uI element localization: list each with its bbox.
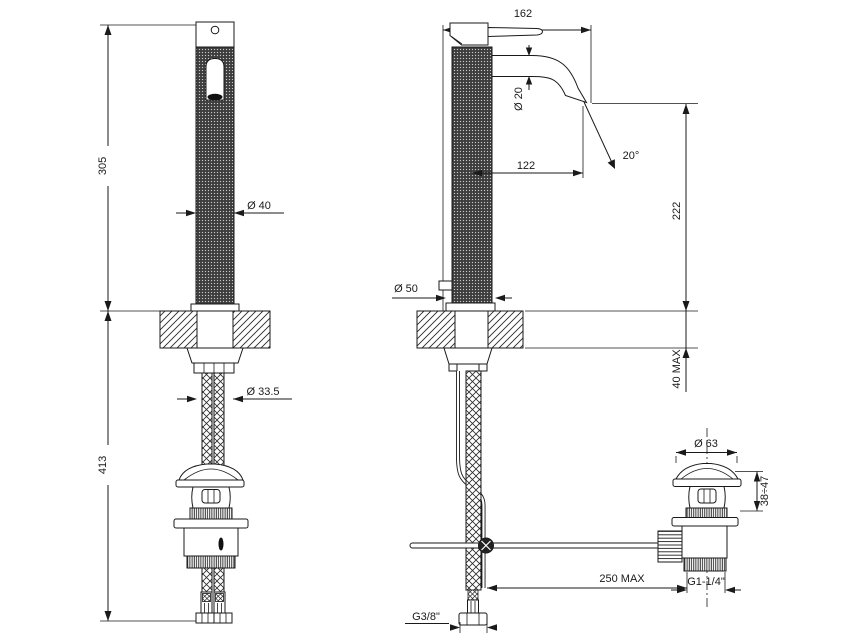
popup-waste-front: [174, 464, 248, 568]
dim-text-122: 122: [517, 160, 535, 172]
waste-tailpiece-thread: [684, 558, 726, 571]
arrow-left: [676, 449, 686, 455]
supply-hose-left: [202, 373, 212, 465]
hose-stub-right: [214, 568, 224, 592]
arrow-down: [683, 301, 690, 311]
dim-hole-diameter: Ø 33.5: [177, 386, 292, 402]
dim-text-g38: G3/8": [412, 611, 440, 623]
dim-text-40max: 40 MAX: [671, 349, 683, 389]
dim-cap-diameter: Ø 63: [676, 438, 737, 463]
dim-text-d50: Ø 50: [394, 283, 418, 295]
water-stream-indicator: 20°: [584, 102, 639, 169]
base-flange-side: [446, 303, 495, 311]
waste-cap-disc: [673, 479, 741, 487]
waste-cap-disc: [176, 480, 244, 487]
dim-text-305: 305: [97, 157, 109, 175]
hose-end-side: [459, 590, 487, 625]
dim-text-250max: 250 MAX: [599, 573, 645, 585]
fixing-nut-side: [444, 348, 492, 364]
dim-text-d63: Ø 63: [694, 438, 718, 450]
fixing-nut-front: [187, 348, 243, 373]
hose-stub-left: [202, 568, 212, 592]
dim-height-above-deck: 305: [97, 25, 196, 311]
dim-height-below-deck: 413: [97, 311, 198, 621]
cap-hole: [211, 26, 219, 34]
arrow-down: [526, 48, 532, 57]
arrow-right: [573, 170, 583, 176]
waste-window: [202, 490, 220, 504]
rod-clamp: [479, 538, 494, 553]
hose-nut-side: [459, 613, 487, 625]
inlet-tab: [439, 281, 452, 290]
fixing-tab-right: [479, 364, 487, 371]
waste-thread-lower: [187, 556, 235, 568]
arrow-right: [186, 210, 196, 216]
waste-window: [698, 489, 716, 503]
fitting-crimp: [468, 590, 478, 600]
handle-lever: [488, 28, 543, 37]
faucet-body-front: [196, 22, 234, 304]
waste-thread-upper: [190, 508, 232, 519]
arrow-up: [683, 348, 690, 358]
fitting-crimp-right: [216, 594, 224, 602]
fitting-body: [468, 600, 479, 613]
top-cap-side: [450, 23, 488, 45]
base-flange: [191, 304, 239, 311]
waste-flange: [672, 518, 738, 527]
dim-text-222: 222: [671, 202, 683, 220]
arrow-left: [725, 587, 735, 593]
dim-text-d20: Ø 20: [513, 87, 525, 111]
rod-connection-nut: [658, 531, 682, 562]
dim-text-g114: G1-1/4": [687, 576, 725, 588]
waste-cap-dome: [676, 464, 738, 480]
supply-hose-side: [466, 371, 481, 590]
supply-hose-right: [214, 373, 224, 465]
dim-waste-thread: G1-1/4": [671, 572, 741, 593]
fixing-nut: [187, 348, 243, 363]
dim-spout-diameter: Ø 20: [513, 45, 532, 111]
waste-thread-upper: [686, 508, 727, 518]
hose-nut-right: [214, 613, 232, 623]
arrow-down: [105, 611, 112, 621]
dim-text-38-47: 38÷47: [759, 476, 771, 507]
dim-text-d40: Ø 40: [247, 200, 271, 212]
deck-section-left: [160, 311, 197, 348]
spout: [492, 56, 587, 103]
fitting-crimp-left: [203, 594, 211, 602]
technical-drawing-canvas: 305 413 Ø 40: [0, 0, 852, 639]
dim-text-162: 162: [514, 8, 532, 20]
overflow-mark: [219, 538, 224, 551]
waste-flange: [174, 519, 248, 528]
arrow-left: [495, 295, 505, 301]
knurled-body-side: [452, 47, 492, 303]
arrow-left: [487, 585, 497, 591]
dim-text-d33-5: Ø 33.5: [246, 386, 279, 398]
stream-line: [584, 102, 614, 167]
waste-body: [184, 528, 238, 556]
dim-deck-thickness: 40 MAX: [525, 311, 698, 392]
arrow-down: [105, 301, 112, 311]
arrow-right: [581, 27, 591, 33]
deck-front: [160, 304, 270, 348]
deck-section-right: [488, 311, 523, 348]
popup-waste-side: [658, 464, 741, 572]
handle-slot: [206, 59, 224, 101]
arrow-right: [727, 449, 737, 455]
popup-horizontal-rod: [410, 543, 660, 548]
fixing-tab-left: [449, 364, 457, 371]
faucet-body-side: [439, 23, 587, 303]
waste-body: [682, 526, 727, 558]
dim-spout-height: 222: [592, 104, 698, 312]
waste-cap-dome: [179, 464, 243, 480]
handle-slot-shadow: [208, 94, 223, 100]
dim-text-413: 413: [97, 456, 109, 474]
deck-section-right: [233, 311, 270, 348]
arrow-right: [187, 396, 197, 402]
dim-rod-reach: 250 MAX: [487, 573, 687, 591]
dim-text-20deg: 20°: [623, 150, 640, 162]
arrow-up: [526, 76, 532, 85]
arrow-up: [105, 25, 112, 35]
front-view: 305 413 Ø 40: [97, 22, 292, 623]
arrow-left: [487, 624, 497, 630]
arrow-up: [683, 104, 690, 114]
deck-section-left: [417, 311, 455, 348]
arrow-up: [105, 311, 112, 321]
hose-nut-left: [196, 613, 214, 623]
drain-detail: Ø 63 38÷: [658, 428, 771, 610]
deck-side: [417, 303, 523, 371]
faucet-dimension-drawing: 305 413 Ø 40: [0, 0, 852, 639]
side-view: 162 Ø 20 122: [392, 8, 698, 633]
dim-adjustment-range: 38÷47: [735, 472, 771, 512]
arrow-right: [450, 624, 460, 630]
hose-ends-front: [196, 568, 232, 623]
arrow-right: [436, 295, 446, 301]
